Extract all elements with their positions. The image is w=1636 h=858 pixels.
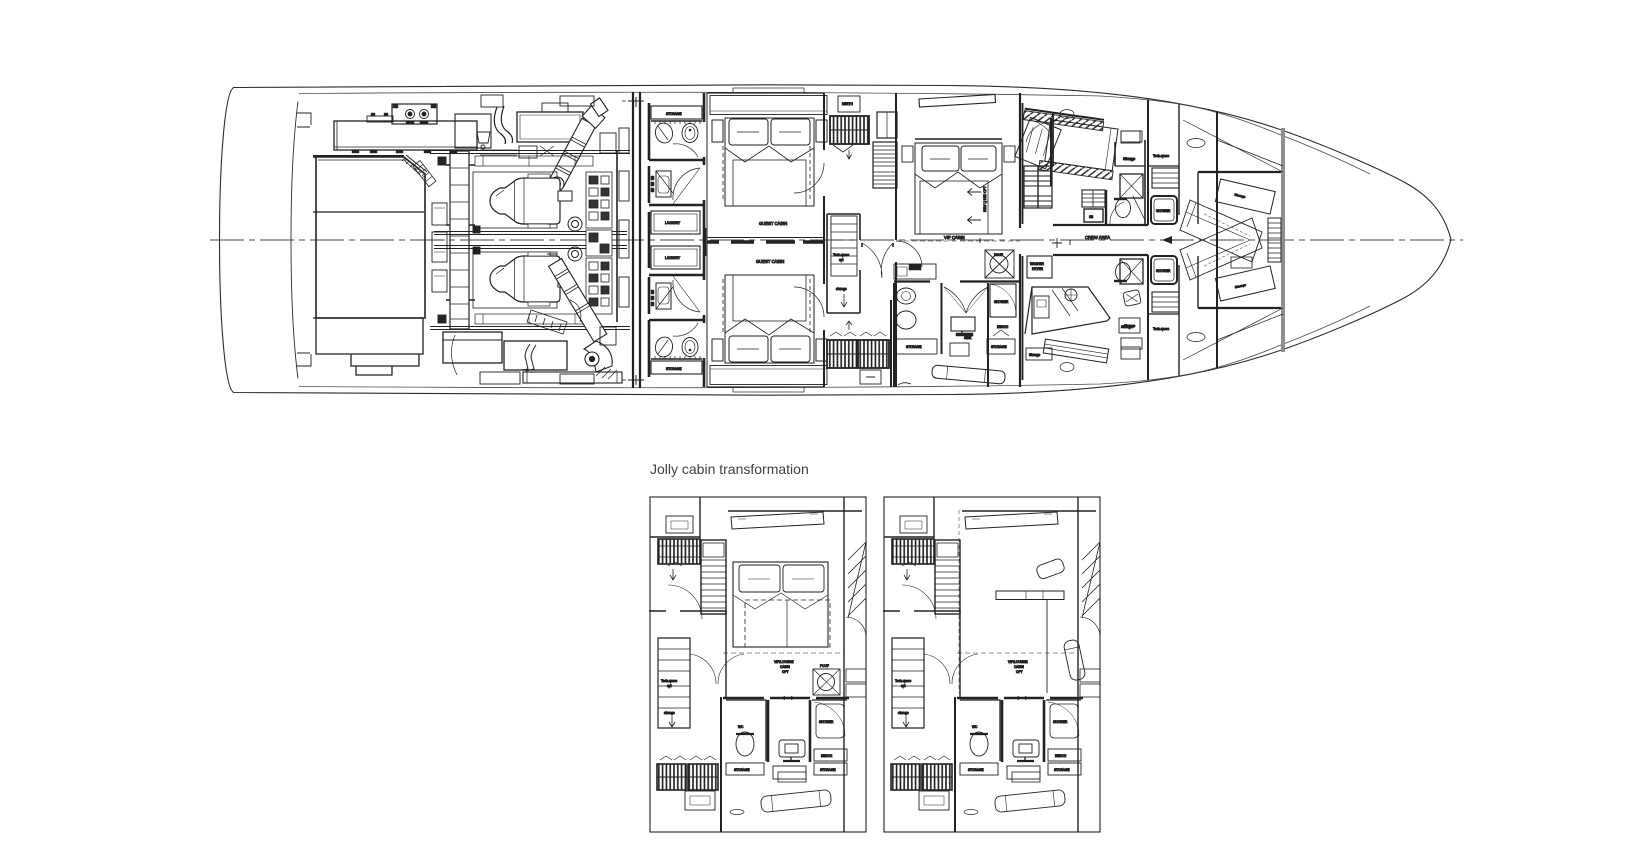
svg-text:BENCH: BENCH (821, 754, 833, 758)
svg-text:opt: opt (667, 684, 672, 688)
svg-text:VIP/LOUNGE: VIP/LOUNGE (774, 660, 794, 664)
svg-text:NEW Q BED OPT: NEW Q BED OPT (983, 186, 987, 212)
svg-text:STORAGE: STORAGE (906, 345, 922, 349)
svg-text:STORAGE: STORAGE (666, 112, 682, 116)
svg-text:SHOWER: SHOWER (1156, 209, 1171, 213)
svg-text:Storage: Storage (1235, 283, 1247, 289)
svg-text:storage: storage (836, 287, 847, 291)
svg-text:Tech.space: Tech.space (661, 679, 677, 683)
svg-text:Tech.space: Tech.space (1153, 154, 1169, 158)
svg-text:Tech.space: Tech.space (1153, 327, 1169, 331)
svg-text:CABIN: CABIN (780, 665, 790, 669)
svg-text:VIP CABIN: VIP CABIN (944, 235, 965, 240)
svg-text:Storage: Storage (1029, 353, 1040, 357)
svg-text:SB: SB (1089, 215, 1093, 219)
svg-text:Storage: Storage (1124, 157, 1135, 161)
svg-text:Tech.space: Tech.space (833, 253, 849, 257)
svg-text:Storage: Storage (1124, 324, 1135, 328)
svg-text:STORAGE: STORAGE (820, 768, 836, 772)
svg-text:WASHER: WASHER (1030, 262, 1045, 266)
svg-text:SHOWER: SHOWER (994, 300, 1009, 304)
svg-text:SHOWER: SHOWER (1156, 269, 1171, 273)
svg-text:LAUNDRY: LAUNDRY (665, 221, 681, 225)
svg-text:Jolly cabin transformation: Jolly cabin transformation (650, 461, 809, 477)
svg-text:STORAGE: STORAGE (666, 367, 682, 371)
svg-text:POUF: POUF (820, 664, 829, 668)
svg-text:opt: opt (839, 258, 844, 262)
svg-text:DRYER: DRYER (1032, 267, 1044, 271)
svg-text:LAUNDRY: LAUNDRY (665, 256, 681, 260)
svg-text:BERTH: BERTH (842, 102, 853, 106)
svg-text:GUEST CABIN: GUEST CABIN (759, 221, 787, 226)
svg-text:GUEST CABIN: GUEST CABIN (756, 259, 784, 264)
svg-text:STORAGE: STORAGE (734, 768, 750, 772)
svg-text:POUF: POUF (994, 253, 1003, 257)
svg-text:STORAGE: STORAGE (991, 345, 1007, 349)
svg-text:SINK: SINK (964, 336, 972, 340)
svg-text:Storage: Storage (1234, 193, 1246, 199)
svg-text:CREW AREA: CREW AREA (1085, 235, 1110, 240)
svg-text:OPT: OPT (782, 670, 789, 674)
svg-text:BENCH: BENCH (997, 325, 1009, 329)
svg-text:SHOWER: SHOWER (819, 720, 834, 724)
svg-text:storage: storage (664, 711, 675, 715)
svg-text:WC: WC (738, 725, 744, 729)
